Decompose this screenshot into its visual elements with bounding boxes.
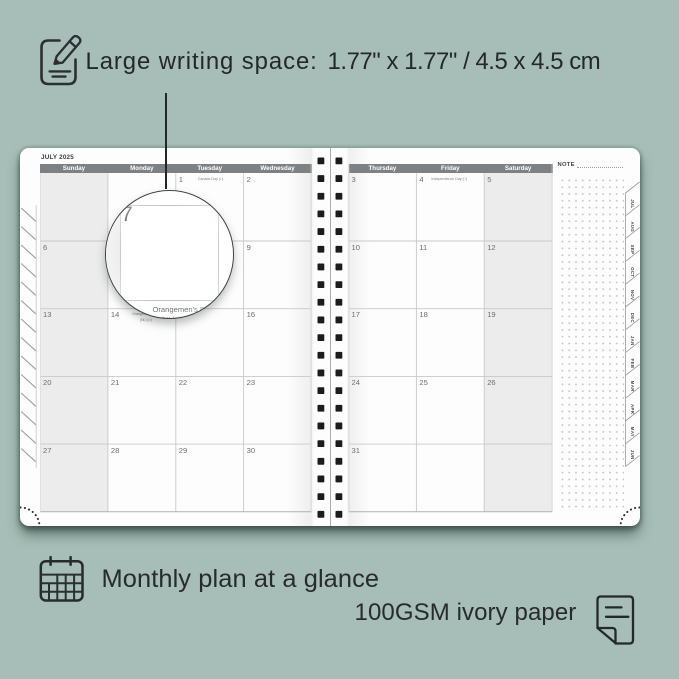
svg-text:JAN: JAN — [630, 336, 635, 346]
svg-text:FEB: FEB — [630, 359, 635, 369]
svg-text:DEC: DEC — [630, 313, 635, 323]
svg-text:OCT: OCT — [630, 267, 635, 277]
svg-text:SEP: SEP — [630, 245, 635, 255]
svg-text:MAR: MAR — [630, 381, 635, 392]
svg-text:APR: APR — [630, 404, 635, 415]
svg-text:JUL: JUL — [630, 199, 635, 208]
svg-text:AUG: AUG — [630, 221, 635, 232]
svg-text:NOV: NOV — [630, 290, 635, 301]
svg-text:MAY: MAY — [630, 427, 635, 437]
svg-text:JUN: JUN — [630, 450, 635, 460]
